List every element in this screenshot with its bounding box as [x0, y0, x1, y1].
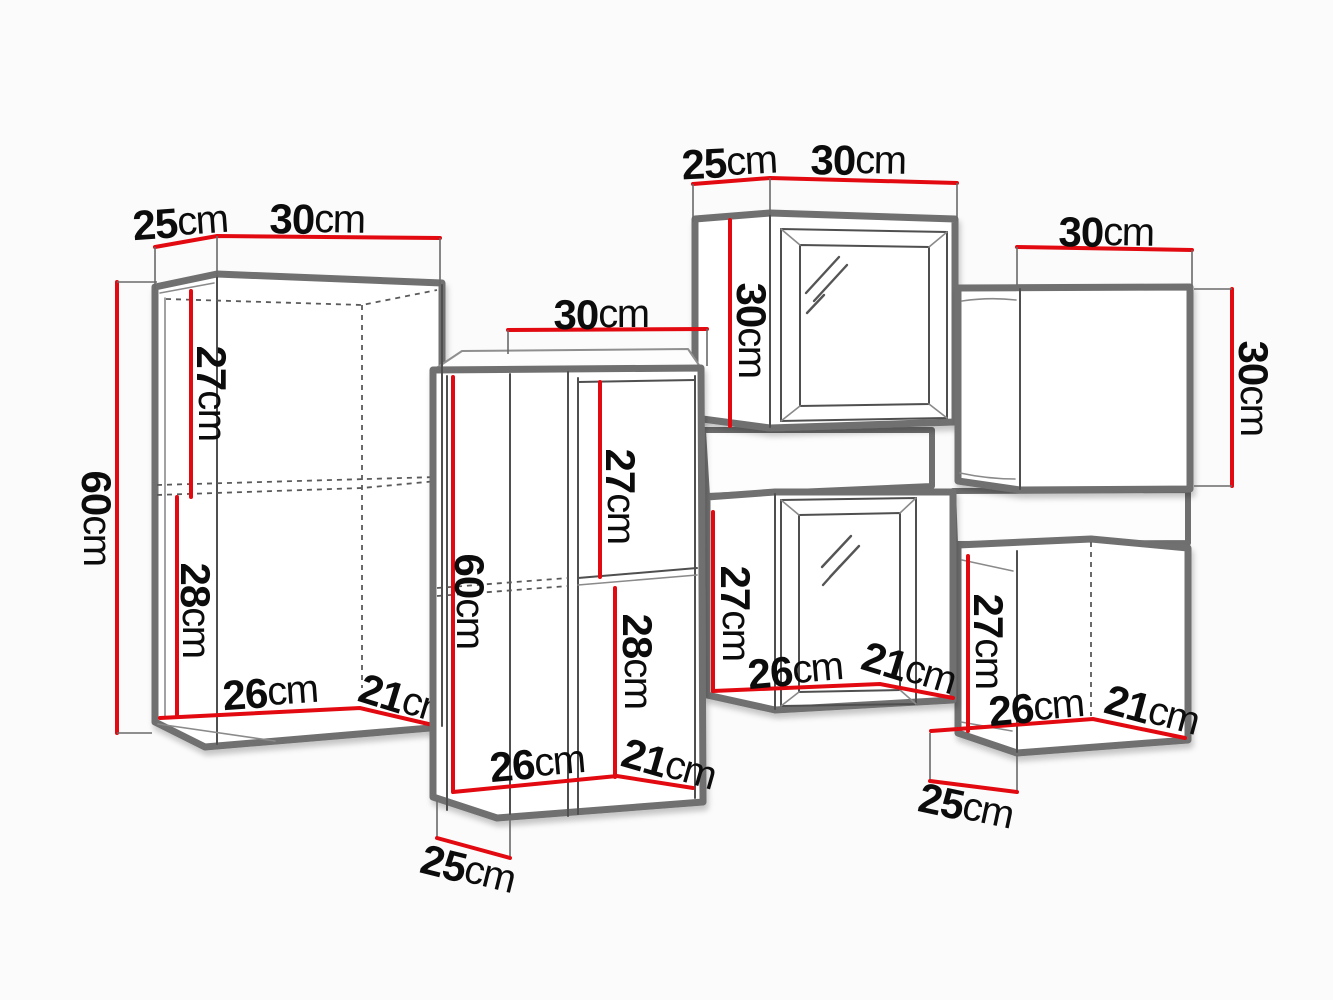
- cabinet3-top-width-label: 30cm: [810, 136, 906, 185]
- cabinet1-bottom-width-label: 26cm: [221, 665, 319, 719]
- cabinet2-lower-label: 28cm: [615, 613, 662, 708]
- cabinet5-height-label: 27cm: [713, 565, 760, 660]
- cabinet1-height-ticks: [117, 282, 157, 733]
- cabinet4-height-label: 30cm: [1231, 340, 1278, 435]
- cabinet-glass-middle-right: 27cm 26cm 21cm: [707, 492, 961, 710]
- cabinet2-top-width-label: 30cm: [553, 291, 648, 338]
- cabinet1-height-label: 60cm: [74, 470, 121, 565]
- cabinet-shelf-middle: 30cm 60cm 27cm 28cm 26cm 21cm 25cm: [416, 291, 721, 904]
- cabinet4-top-width-label: 30cm: [1058, 208, 1154, 257]
- cabinet-tall-left: 25cm 30cm 60cm 27cm 28cm 26cm 21cm: [74, 195, 459, 747]
- cabinet1-lower-label: 28cm: [173, 562, 220, 657]
- cabinet6-base-depth-label: 25cm: [915, 773, 1018, 839]
- cabinet-square-bottom-right: 27cm 26cm 21cm 25cm: [915, 539, 1204, 839]
- cabinet3-height-label: 30cm: [729, 282, 776, 377]
- niche-band-right: [953, 490, 1188, 544]
- cabinet6-height-label: 27cm: [966, 593, 1013, 688]
- dimension-diagram: 25cm 30cm 30cm 30cm 30cm 27cm 26cm 21cm …: [0, 0, 1333, 1000]
- niche-band-middle-frame: [703, 430, 932, 496]
- cabinet4-height-ticks: [1194, 289, 1232, 486]
- niche-band-middle: [703, 430, 932, 496]
- cabinet1-top-width-label: 30cm: [269, 195, 365, 244]
- cabinet-square-top-right: 30cm 30cm: [958, 208, 1278, 490]
- cabinet4-body: [958, 287, 1190, 490]
- cabinet1-top-depth-label: 25cm: [131, 195, 229, 249]
- niche-band-right-frame: [953, 490, 1188, 544]
- cabinet3-top-depth-label: 25cm: [680, 136, 777, 188]
- cabinet2-height-label: 60cm: [447, 553, 494, 648]
- cabinet2-base-depth-label: 25cm: [416, 835, 520, 904]
- cabinet-glass-top-middle: 25cm 30cm 30cm: [680, 136, 957, 428]
- cabinet1-upper-label: 27cm: [189, 345, 236, 440]
- cabinet2-upper-label: 27cm: [598, 448, 645, 543]
